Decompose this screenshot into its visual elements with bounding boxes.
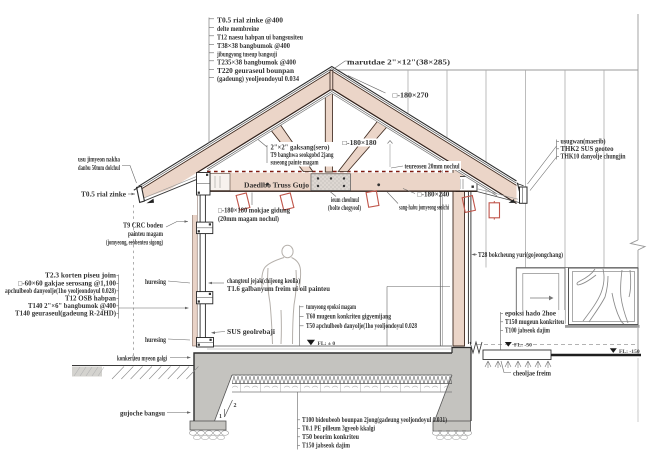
svg-text:T220 geuraseul bounpan: T220 geuraseul bounpan: [217, 68, 294, 75]
svg-text:T9 CRC bodeu: T9 CRC bodeu: [123, 223, 163, 230]
svg-text:T28 bokcheung yuri(gojeongchan: T28 bokcheung yuri(gojeongchang): [478, 252, 563, 259]
svg-text:T0.1 PE pilleum 3gyeob kkalgi: T0.1 PE pilleum 3gyeob kkalgi: [302, 426, 375, 433]
svg-text:suseong painte magam: suseong painte magam: [271, 160, 319, 167]
svg-text:(gadeung) yeoljeondoyul 0.034: (gadeung) yeoljeondoyul 0.034: [217, 76, 300, 83]
svg-text:tumyeong epoksi magam: tumyeong epoksi magam: [306, 304, 356, 311]
svg-text:delte membreine: delte membreine: [217, 26, 259, 33]
svg-text:danbu 50mm dolchul: danbu 50mm dolchul: [78, 165, 120, 172]
svg-text:□-180×240: □-180×240: [417, 191, 450, 198]
svg-text:apchulbeob danyeolje(1ho yeolj: apchulbeob danyeolje(1ho yeoljeondoyul 0…: [5, 288, 116, 295]
svg-text:T12 OSB habpan: T12 OSB habpan: [65, 296, 116, 303]
svg-text:T2.3 korten piseu joim: T2.3 korten piseu joim: [45, 273, 116, 280]
svg-text:T60 mugeun konkriteu gigyemija: T60 mugeun konkriteu gigyemijang: [306, 314, 391, 321]
svg-text:T0.5 rial zinke @400: T0.5 rial zinke @400: [217, 18, 284, 25]
svg-text:T140 geuraseul(gadeung R-24HD): T140 geuraseul(gadeung R-24HD): [15, 311, 116, 318]
svg-text:SUS geolrebaji: SUS geolrebaji: [227, 329, 275, 336]
svg-text:FL: -50: FL: -50: [514, 343, 532, 349]
svg-text:(jomyeong, eeobenteu sigong): (jomyeong, eeobenteu sigong): [106, 240, 163, 247]
svg-text:T150 jabseok dajim: T150 jabseok dajim: [302, 443, 350, 450]
svg-text:konkeriteu myeon galgi: konkeriteu myeon galgi: [117, 356, 167, 363]
svg-text:T50 apchulbeob danyolje(1ho ye: T50 apchulbeob danyolje(1ho yeoljondoyul…: [306, 323, 417, 330]
svg-text:epoksi hado 2hoe: epoksi hado 2hoe: [505, 311, 556, 318]
svg-text:T9 banghwa seokgobd 2jang: T9 banghwa seokgobd 2jang: [271, 152, 334, 159]
svg-text:□-180×180: □-180×180: [343, 140, 378, 147]
svg-text:painteu magam: painteu magam: [128, 231, 163, 238]
svg-text:usu jimyeon nakha: usu jimyeon nakha: [78, 157, 120, 164]
svg-text:(20mm magam nochul): (20mm magam nochul): [218, 216, 279, 223]
svg-text:gujoche bangsu: gujoche bangsu: [120, 411, 165, 418]
svg-text:marutdae 2"×12"(38×285): marutdae 2"×12"(38×285): [347, 60, 450, 67]
svg-text:cheoljae freim: cheoljae freim: [513, 371, 551, 378]
svg-text:THK2 SUS geoteo: THK2 SUS geoteo: [561, 146, 615, 153]
svg-text:T50 beorim konkriteu: T50 beorim konkriteu: [302, 434, 359, 441]
svg-text:T38×38 bangbumok @400: T38×38 bangbumok @400: [217, 43, 291, 50]
svg-text:sang-habu jomyeong seolchi: sang-habu jomyeong seolchi: [399, 205, 449, 212]
svg-text:usugwan(maerib): usugwan(maerib): [561, 139, 606, 146]
svg-text:jibungyong tuseup bangsuji: jibungyong tuseup bangsuji: [216, 52, 277, 59]
svg-text:T0.5 rial zinke: T0.5 rial zinke: [81, 192, 126, 199]
svg-text:teureoseu 20mm nochul: teureoseu 20mm nochul: [405, 164, 460, 171]
svg-text:ieum cheolmul: ieum cheolmul: [331, 197, 359, 204]
svg-text:T140 2"×6" bangbumok @400: T140 2"×6" bangbumok @400: [28, 303, 117, 310]
svg-text:T12 naesu habpan ui bangsusite: T12 naesu habpan ui bangsusiteu: [217, 35, 303, 42]
svg-text:T1.6 galbanyum freim ui oil pa: T1.6 galbanyum freim ui oil painteu: [227, 286, 330, 293]
svg-text:T150 mugeun konkriteu: T150 mugeun konkriteu: [505, 319, 564, 326]
svg-text:□-180×270: □-180×270: [393, 93, 430, 100]
svg-text:T100 jabseok dajim: T100 jabseok dajim: [505, 328, 550, 335]
svg-text:THK10 danyolje chungjin: THK10 danyolje chungjin: [561, 154, 626, 161]
svg-text:huresing: huresing: [145, 279, 166, 286]
svg-text:1: 1: [219, 414, 222, 420]
svg-text:□-60×60 gakjae serosang @1,100: □-60×60 gakjae serosang @1,100: [18, 281, 117, 288]
svg-text:2"×2" gaksang(sero): 2"×2" gaksang(sero): [271, 145, 330, 152]
svg-text:2: 2: [234, 403, 237, 409]
svg-text:Daedlbo Truss Gujo: Daedlbo Truss Gujo: [244, 182, 309, 190]
svg-text:huresing: huresing: [145, 337, 166, 344]
svg-text:T235×38 bangbumok @400: T235×38 bangbumok @400: [217, 60, 297, 67]
svg-text:□-180×180 mokjae gidung: □-180×180 mokjae gidung: [218, 208, 291, 215]
svg-text:(bolte chegyeol): (bolte chegyeol): [328, 205, 361, 212]
svg-text:T100 bideubeob bounpan 2jong(g: T100 bideubeob bounpan 2jong(gadeung yeo…: [302, 417, 447, 424]
svg-text:changteul jejak(chijeong keoll: changteul jejak(chijeong keolla): [227, 278, 300, 285]
svg-text:FL: ± 0: FL: ± 0: [318, 341, 336, 347]
svg-text:FL: -150: FL: -150: [619, 349, 640, 355]
